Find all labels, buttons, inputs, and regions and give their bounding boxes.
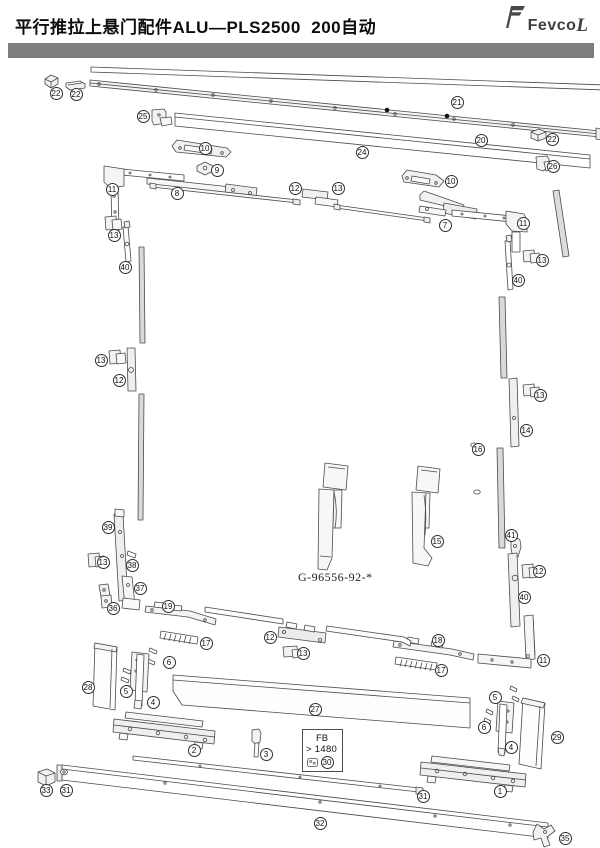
left-endcap-group — [93, 643, 149, 710]
callout-1: 1 — [494, 785, 507, 798]
callout-20: 20 — [475, 134, 488, 147]
callout-21: 21 — [451, 96, 464, 109]
callout-33: 33 — [40, 784, 53, 797]
callout-36: 36 — [107, 602, 120, 615]
callout-7: 7 — [439, 219, 452, 232]
callout-13: 13 — [108, 229, 121, 242]
callout-25: 25 — [137, 110, 150, 123]
callout-9: 9 — [211, 164, 224, 177]
callout-27: 27 — [309, 703, 322, 716]
callout-5: 5 — [489, 691, 502, 704]
callout-40: 40 — [119, 261, 132, 274]
left-column — [88, 216, 145, 610]
callout-22: 22 — [50, 87, 63, 100]
callout-31: 31 — [417, 790, 430, 803]
callout-2: 2 — [188, 744, 201, 757]
callout-39: 39 — [102, 521, 115, 534]
right-handle — [412, 466, 440, 566]
bottom-centre-assembly — [145, 602, 411, 665]
callout-30: 30 — [321, 756, 334, 769]
callout-11: 11 — [537, 654, 550, 667]
upper-right-corner-group — [402, 170, 569, 257]
callout-11: 11 — [517, 217, 530, 230]
callout-12: 12 — [533, 565, 546, 578]
callout-10: 10 — [199, 142, 212, 155]
top-centre-connectors — [302, 189, 430, 223]
callout-38: 38 — [126, 559, 139, 572]
callout-22: 22 — [70, 88, 83, 101]
callout-24: 24 — [356, 146, 369, 159]
callout-13: 13 — [536, 254, 549, 267]
callout-18: 18 — [432, 634, 445, 647]
callout-17: 17 — [200, 637, 213, 650]
diagram-line-art — [0, 0, 600, 848]
callout-6: 6 — [478, 721, 491, 734]
fb-label: FB — [316, 733, 328, 744]
callout-4: 4 — [147, 696, 160, 709]
callout-13: 13 — [534, 389, 547, 402]
callout-41: 41 — [505, 529, 518, 542]
fastener-icon — [307, 757, 318, 771]
left-carriage — [113, 712, 215, 749]
callout-12: 12 — [264, 631, 277, 644]
callout-5: 5 — [120, 685, 133, 698]
callout-10: 10 — [445, 175, 458, 188]
callout-16: 16 — [472, 443, 485, 456]
callout-11: 11 — [106, 183, 119, 196]
callout-28: 28 — [82, 681, 95, 694]
callout-19: 19 — [162, 600, 175, 613]
bottom-cover-profile — [173, 675, 470, 728]
callout-22: 22 — [546, 133, 559, 146]
callout-32: 32 — [314, 817, 327, 830]
callout-26: 26 — [547, 160, 560, 173]
callout-14: 14 — [520, 424, 533, 437]
callout-12: 12 — [113, 374, 126, 387]
callout-13: 13 — [97, 556, 110, 569]
callout-37: 37 — [134, 582, 147, 595]
callout-13: 13 — [297, 647, 310, 660]
left-handle — [318, 463, 348, 570]
callout-6: 6 — [163, 656, 176, 669]
callout-4: 4 — [505, 741, 518, 754]
callout-17: 17 — [435, 664, 448, 677]
callout-31: 31 — [60, 784, 73, 797]
callout-3: 3 — [260, 748, 273, 761]
callout-12: 12 — [289, 182, 302, 195]
part-number-label: G-96556-92-* — [298, 570, 373, 585]
callout-8: 8 — [171, 187, 184, 200]
callout-13: 13 — [95, 354, 108, 367]
right-carriage — [420, 756, 526, 792]
callout-29: 29 — [551, 731, 564, 744]
callout-40: 40 — [518, 591, 531, 604]
diagram-page: 平行推拉上悬门配件ALU—PLS2500 200自动 Fevco L — [0, 0, 600, 848]
fb-value: > 1480 — [306, 744, 337, 755]
callout-35: 35 — [559, 832, 572, 845]
callout-40: 40 — [512, 274, 525, 287]
callout-15: 15 — [431, 535, 444, 548]
callout-13: 13 — [332, 182, 345, 195]
